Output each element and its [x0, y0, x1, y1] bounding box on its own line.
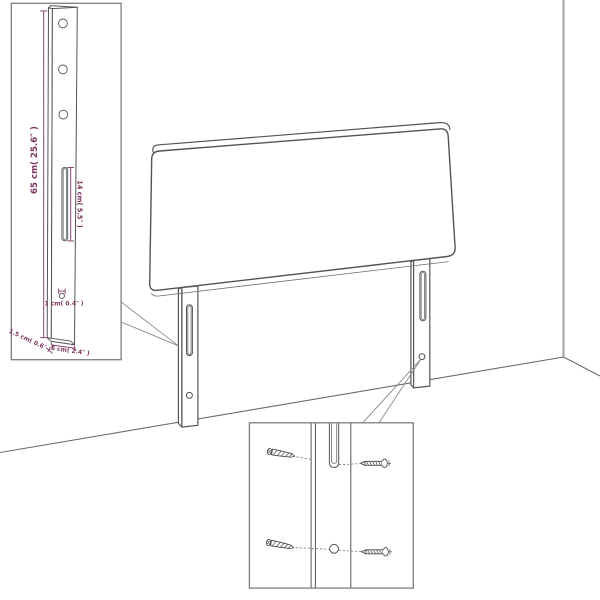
floor-line-right — [564, 357, 600, 376]
dimension-label-hole: 1 cm( 0.4″ ) — [44, 301, 83, 308]
dimension-label-slot: 14 cm( 5.5″ ) — [75, 180, 83, 228]
dimension-label-height: 65 cm( 25.6″ ) — [30, 126, 40, 194]
diagram-canvas: 65 cm( 25.6″ ) 14 cm( 5.5″ ) 1 cm( 0.4″ … — [0, 0, 600, 600]
leader-line — [121, 302, 178, 346]
inset-screw-detail — [249, 423, 413, 588]
left-leg-front-face — [182, 286, 198, 427]
leader-line — [121, 322, 178, 346]
headboard-panel — [150, 123, 455, 297]
headboard-left-leg — [178, 286, 198, 427]
callout-leader-lines — [121, 302, 421, 423]
leader-line — [379, 359, 421, 423]
right-leg-front-face — [414, 259, 430, 388]
diagram: 65 cm( 25.6″ ) 14 cm( 5.5″ ) 1 cm( 0.4″ … — [0, 0, 600, 600]
leader-line — [363, 359, 421, 423]
headboard-right-leg — [411, 259, 430, 388]
inset-post-detail: 65 cm( 25.6″ ) 14 cm( 5.5″ ) 1 cm( 0.4″ … — [8, 3, 122, 359]
post-drawing — [47, 6, 77, 345]
